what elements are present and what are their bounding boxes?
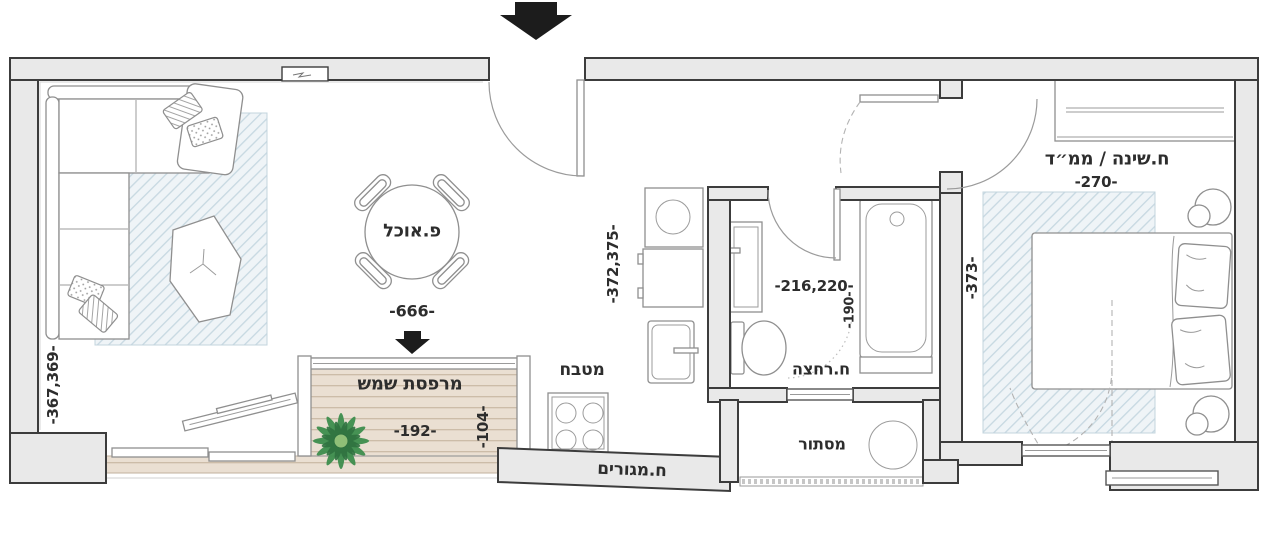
bathroom-label: ח.רחצה [792,360,850,379]
floor-plan: פ.אוכל -666- מרפסת שמש -192- -104- מטבח … [0,0,1286,533]
closet [1055,80,1235,141]
electrical-panel-icon [282,67,328,81]
kitchen-counter [638,188,703,307]
floor-plan-drawing [0,0,1286,533]
entry-arrow-icon [500,2,572,40]
pillow [1171,315,1231,385]
kitchen-dim: -372,375- [604,225,622,304]
service-grille [740,477,923,486]
bedroom-window [1022,445,1110,456]
service-label: מסתור [798,435,846,454]
toilet [731,321,786,375]
service-boiler [869,421,917,469]
bathroom-door [768,189,840,260]
dining-dim-width: -666- [389,302,435,321]
bathroom-dim-door: -190- [843,292,858,329]
bedroom-dim-width: -270- [1075,173,1118,191]
living-dim-depth: -367,369- [44,346,62,425]
balcony-label: מרפסת שמש [357,374,462,395]
kitchen-sink [648,321,698,383]
bedroom-door [840,95,1037,189]
balcony-deck [106,358,530,478]
bathroom-window [787,389,853,400]
bedroom-dim-depth: -373- [963,257,981,300]
entry-door [489,80,584,176]
kitchen-stove [548,393,608,453]
pillow [1175,243,1231,308]
kitchen-label: מטבח [559,360,604,380]
dining-label: פ.אוכל [383,221,441,242]
balcony-dim-width: -192- [394,422,437,440]
balcony-arrow-icon [395,331,430,354]
bedroom-label: ח.שינה / ממ״ד [1045,149,1170,170]
bathtub [860,198,932,373]
living-label: ח.מגורים [597,459,667,481]
bed [1032,233,1232,389]
louver-shutter [1106,471,1218,485]
balcony-dim-depth: -104- [474,406,492,449]
sliding-door-leaf [182,389,298,431]
